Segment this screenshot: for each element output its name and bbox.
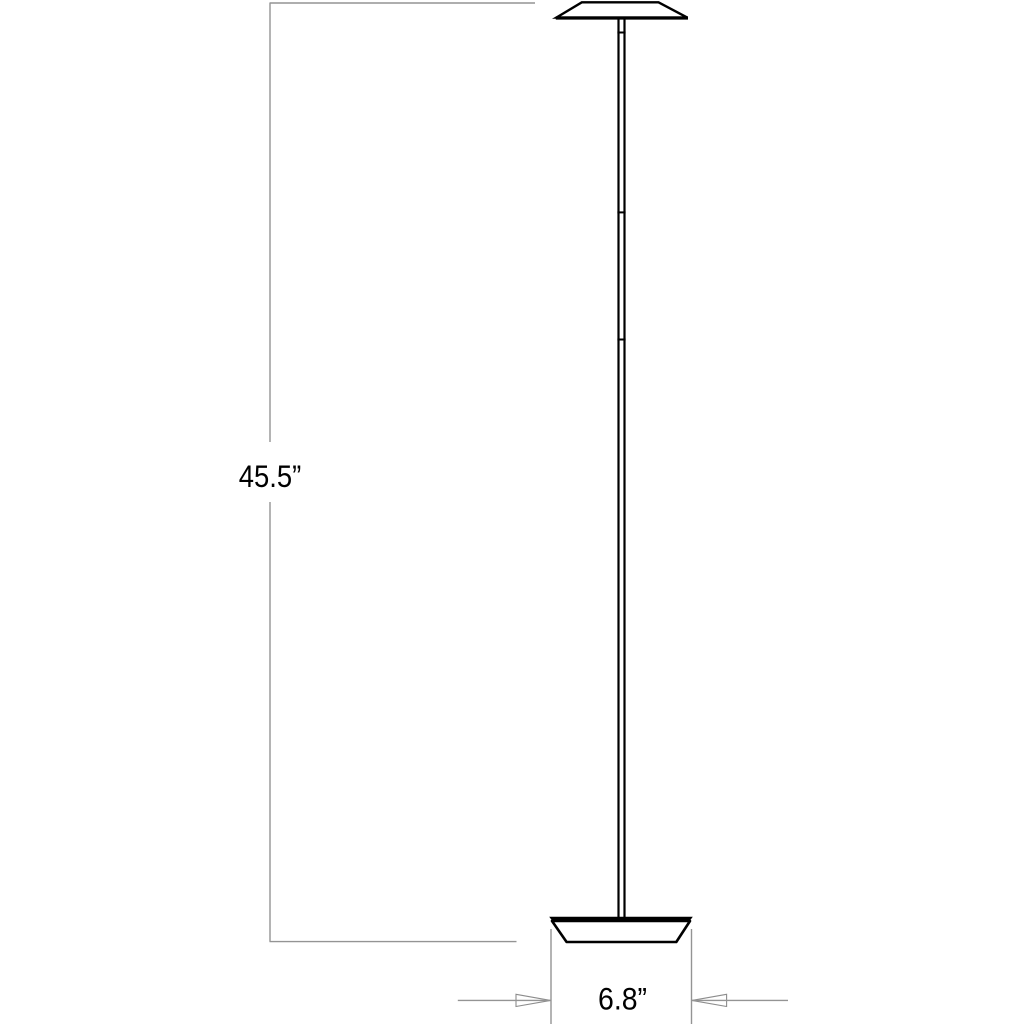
svg-text:45.5”: 45.5”	[239, 458, 302, 494]
svg-text:6.8”: 6.8”	[598, 981, 647, 1017]
